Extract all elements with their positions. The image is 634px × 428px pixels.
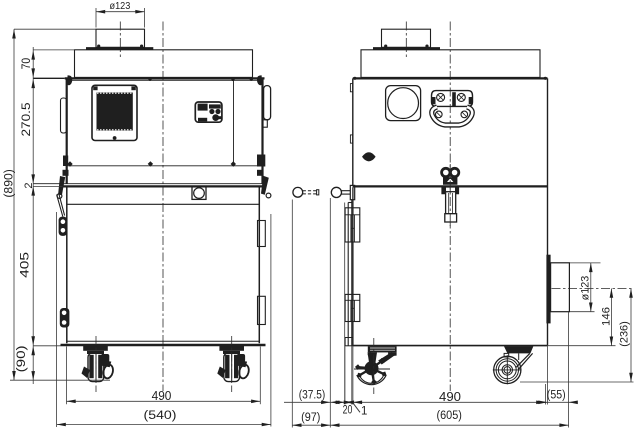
svg-text:(540): (540) bbox=[144, 410, 177, 422]
svg-text:490: 490 bbox=[439, 390, 461, 404]
svg-text:(605): (605) bbox=[437, 410, 463, 422]
svg-text:(97): (97) bbox=[301, 412, 320, 424]
svg-text:490: 490 bbox=[152, 389, 172, 403]
svg-text:146: 146 bbox=[601, 307, 613, 326]
svg-text:70: 70 bbox=[21, 58, 33, 70]
svg-text:(55): (55) bbox=[547, 390, 566, 402]
svg-text:2: 2 bbox=[23, 182, 35, 188]
svg-text:1: 1 bbox=[361, 406, 367, 418]
svg-text:(37.5): (37.5) bbox=[299, 389, 326, 401]
svg-text:20: 20 bbox=[343, 404, 353, 416]
svg-text:270.5: 270.5 bbox=[21, 103, 33, 137]
svg-text:405: 405 bbox=[19, 252, 31, 278]
svg-text:(236): (236) bbox=[619, 321, 631, 347]
svg-text:ø123: ø123 bbox=[579, 276, 591, 301]
svg-text:(890): (890) bbox=[4, 169, 16, 198]
svg-text:ø123: ø123 bbox=[110, 0, 131, 12]
svg-text:(90): (90) bbox=[16, 345, 28, 372]
